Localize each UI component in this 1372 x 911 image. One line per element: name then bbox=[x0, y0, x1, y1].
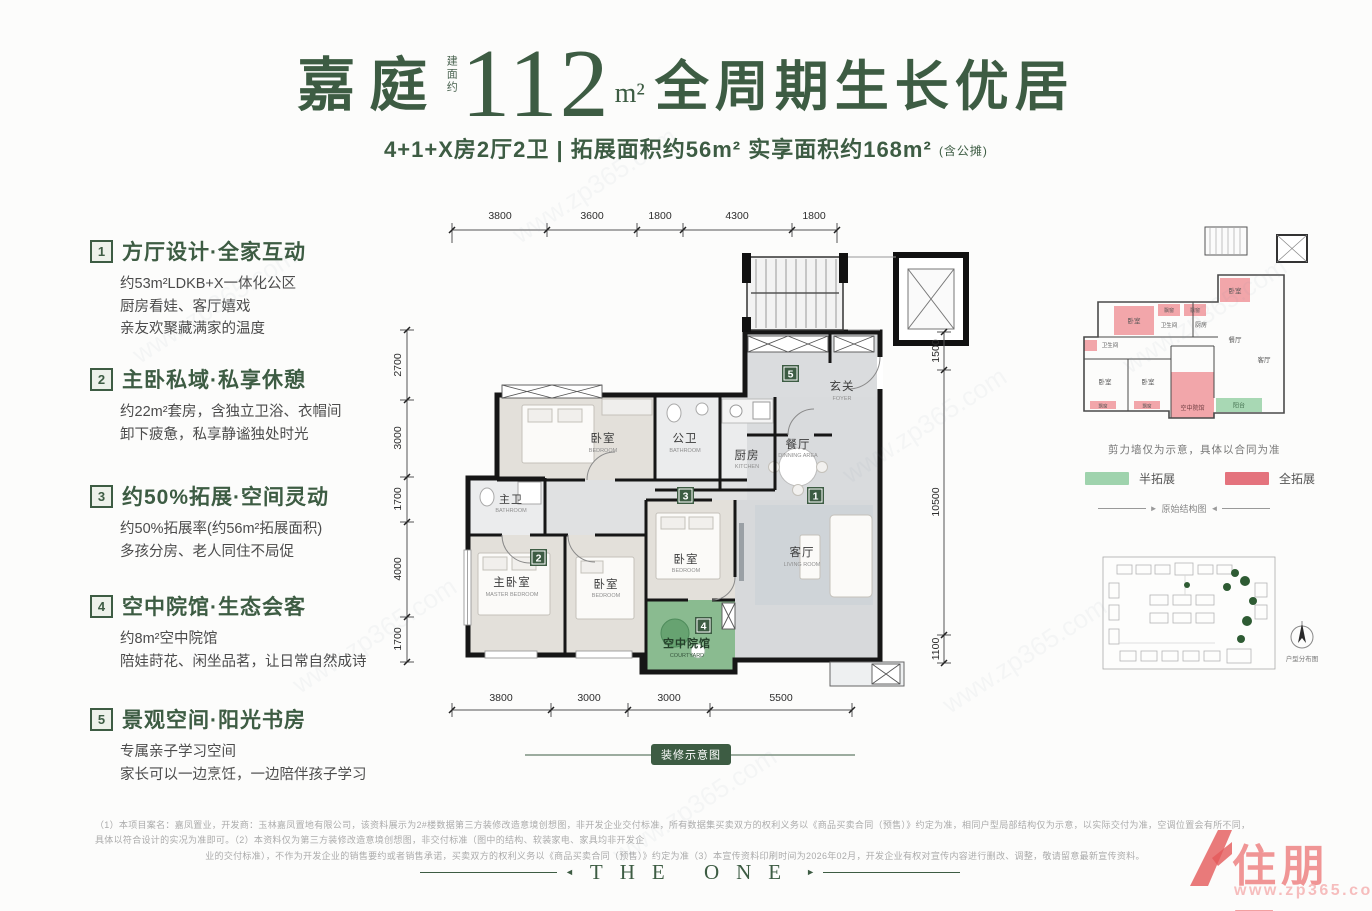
room-label-cn: 卧室 bbox=[594, 577, 619, 591]
legend-half-label: 半拓展 bbox=[1139, 470, 1175, 487]
feature-line: 亲友欢聚藏满家的温度 bbox=[120, 320, 405, 339]
watermark-site: www.zp365.com bbox=[1234, 882, 1372, 900]
feature-body: 约53m²LDKB+X一体化公区 厨房看娃、客厅嬉戏 亲友欢聚藏满家的温度 bbox=[120, 275, 405, 339]
svg-text:卫生间: 卫生间 bbox=[1161, 321, 1178, 329]
area-prefix: 建面约 bbox=[443, 55, 459, 94]
feature-block-2: 2 主卧私域·私享休憩 约22m²套房，含独立卫浴、衣帽间 卸下疲惫，私享静谧独… bbox=[90, 364, 405, 448]
structural-mini-plan: 卧室 卧室 飘窗 飘窗 卫生间 厨房 卫生间 卧室 卧室 飘窗 飘窗 餐厅 客厅… bbox=[1048, 222, 1348, 432]
title-row: 嘉庭 建面约 112 m² 全周期生长优居 bbox=[0, 38, 1372, 116]
mini-stairs bbox=[1205, 227, 1307, 262]
floorplan: 卧室 BEDROOM 公卫 BATHROOM 厨房 KITCHEN 餐厅 DIN… bbox=[390, 205, 990, 775]
svg-text:3800: 3800 bbox=[489, 692, 513, 704]
plan-badge-1: 1 bbox=[807, 487, 824, 504]
svg-text:1700: 1700 bbox=[392, 487, 404, 511]
balcony bbox=[830, 662, 904, 686]
feature-line: 约8m²空中院馆 bbox=[120, 630, 405, 649]
room-label-en: LIVING ROOM bbox=[784, 562, 821, 568]
svg-text:3000: 3000 bbox=[392, 426, 404, 450]
svg-text:1100: 1100 bbox=[930, 638, 942, 661]
feature-title: 约50%拓展·空间灵动 bbox=[122, 481, 329, 511]
svg-text:飘窗: 飘窗 bbox=[1099, 403, 1108, 410]
svg-text:客厅: 客厅 bbox=[1258, 355, 1272, 364]
svg-text:飘窗: 飘窗 bbox=[1190, 307, 1200, 314]
dims-left: 2700 3000 1700 4000 1700 bbox=[392, 327, 414, 665]
room-label-en: COURTYARD bbox=[670, 653, 704, 659]
svg-text:5500: 5500 bbox=[769, 692, 793, 704]
structural-note: 剪力墙仅为示意，具体以合同为准 bbox=[1108, 442, 1363, 457]
svg-text:卧室: 卧室 bbox=[1229, 286, 1243, 295]
room-label-en: BATHROOM bbox=[669, 448, 701, 454]
svg-text:餐厅: 餐厅 bbox=[1229, 335, 1243, 344]
svg-text:阳台: 阳台 bbox=[1233, 402, 1245, 410]
svg-text:1800: 1800 bbox=[802, 210, 826, 222]
compass-icon: 户型分布图 bbox=[1286, 621, 1319, 663]
plan-badge-5: 5 bbox=[782, 365, 799, 382]
room-label-cn: 厨房 bbox=[735, 449, 760, 462]
svg-text:卧室: 卧室 bbox=[1142, 377, 1156, 386]
logo-line bbox=[823, 872, 960, 873]
svg-text:3800: 3800 bbox=[488, 210, 512, 222]
svg-text:3000: 3000 bbox=[657, 692, 681, 704]
plan-badge-3: 3 bbox=[677, 487, 694, 504]
svg-text:卫生间: 卫生间 bbox=[1102, 341, 1119, 349]
structural-divider: ► 原始结构图 ◄ bbox=[1098, 502, 1270, 515]
room-label-en: FOYER bbox=[833, 396, 852, 402]
feature-line: 专属亲子学习空间 bbox=[120, 743, 405, 762]
room-label-en: BEDROOM bbox=[589, 448, 618, 454]
feature-line: 多孩分房、老人同住不局促 bbox=[120, 543, 405, 562]
feature-line: 家长可以一边烹饪，一边陪伴孩子学习 bbox=[120, 766, 405, 785]
svg-text:装修示意图: 装修示意图 bbox=[661, 748, 721, 762]
svg-text:飘窗: 飘窗 bbox=[1143, 403, 1152, 410]
room-label-en: KITCHEN bbox=[735, 464, 759, 470]
subtitle-note: (含公摊) bbox=[939, 144, 988, 158]
dims-bottom: 3800 3000 3000 5500 bbox=[449, 692, 855, 717]
room-label-cn: 卧室 bbox=[591, 431, 616, 445]
room-label-en: BEDROOM bbox=[592, 593, 621, 599]
feature-line: 约53m²LDKB+X一体化公区 bbox=[120, 275, 405, 294]
disclaimer-line1: （1）本项目案名：嘉凤置业，开发商：玉林嘉凤置地有限公司，该资料展示为2#楼数据… bbox=[95, 818, 1255, 849]
room-label-cn: 客厅 bbox=[790, 545, 815, 559]
svg-text:3600: 3600 bbox=[580, 210, 604, 222]
plan-badge-2: 2 bbox=[530, 549, 547, 566]
svg-text:3000: 3000 bbox=[577, 692, 601, 704]
plan-badge-4: 4 bbox=[695, 617, 712, 634]
feature-title: 景观空间·阳光书房 bbox=[122, 704, 306, 734]
room-label-cn: 主卫 bbox=[499, 493, 523, 506]
watermark-logo: 住朋网 www.zp365.com bbox=[1188, 824, 1372, 911]
room-label-cn: 空中院馆 bbox=[663, 636, 711, 650]
feature-line: 约50%拓展率(约56m²拓展面积) bbox=[120, 520, 405, 539]
subtitle-main: 4+1+X房2厅2卫 | 拓展面积约56m² 实享面积约168m² bbox=[384, 137, 932, 162]
svg-text:1500: 1500 bbox=[930, 339, 942, 363]
header: 嘉庭 建面约 112 m² 全周期生长优居 4+1+X房2厅2卫 | 拓展面积约… bbox=[0, 38, 1372, 164]
feature-block-3: 3 约50%拓展·空间灵动 约50%拓展率(约56m²拓展面积) 多孩分房、老人… bbox=[90, 481, 405, 565]
area-value: 112 bbox=[461, 44, 610, 124]
svg-text:1: 1 bbox=[813, 491, 819, 503]
feature-line: 陪娃莳花、闲坐品茗，让日常自然成诗 bbox=[120, 653, 405, 672]
feature-title: 方厅设计·全家互动 bbox=[122, 236, 306, 266]
feature-badge: 1 bbox=[90, 240, 113, 263]
svg-text:飘窗: 飘窗 bbox=[1164, 307, 1174, 314]
legend-half-swatch bbox=[1085, 472, 1129, 485]
svg-text:1800: 1800 bbox=[648, 210, 672, 222]
divider-line bbox=[1098, 508, 1146, 509]
legend: 半拓展 全拓展 bbox=[1085, 470, 1335, 487]
feature-title: 空中院馆·生态会客 bbox=[122, 591, 306, 621]
feature-badge: 5 bbox=[90, 708, 113, 731]
watermark-mark-icon bbox=[1188, 828, 1236, 890]
logo-arrow-left-icon: ◄ bbox=[565, 868, 574, 877]
room-label-en: BATHROOM bbox=[495, 508, 527, 514]
room-label-en: DINNING AREA bbox=[778, 453, 818, 459]
title-slogan: 全周期生长优居 bbox=[655, 42, 1075, 121]
divider-line bbox=[1222, 508, 1270, 509]
feature-block-5: 5 景观空间·阳光书房 专属亲子学习空间 家长可以一边烹饪，一边陪伴孩子学习 bbox=[90, 704, 405, 788]
divider-arrow-left-icon: ◄ bbox=[1211, 505, 1219, 513]
dims-right: 1500 10500 1100 bbox=[930, 329, 951, 666]
area-unit: m² bbox=[615, 78, 645, 110]
stairs bbox=[742, 253, 848, 332]
room-label-en: MASTER BEDROOM bbox=[486, 592, 539, 598]
svg-text:4300: 4300 bbox=[725, 210, 749, 222]
plan-caption: 装修示意图 bbox=[525, 744, 855, 765]
footer-logo: ◄ THE ONE ► bbox=[420, 860, 960, 885]
feature-head: 1 方厅设计·全家互动 bbox=[90, 236, 405, 266]
subtitle: 4+1+X房2厅2卫 | 拓展面积约56m² 实享面积约168m² (含公摊) bbox=[0, 132, 1372, 164]
room-label-cn: 玄关 bbox=[830, 379, 855, 393]
feature-badge: 2 bbox=[90, 368, 113, 391]
svg-text:10500: 10500 bbox=[930, 487, 942, 516]
poster: 嘉庭 建面约 112 m² 全周期生长优居 4+1+X房2厅2卫 | 拓展面积约… bbox=[0, 0, 1372, 911]
compass-label: 户型分布图 bbox=[1286, 654, 1319, 663]
svg-text:4000: 4000 bbox=[392, 557, 404, 581]
divider-arrow-right-icon: ► bbox=[1150, 505, 1158, 513]
site-plan: 户型分布图 bbox=[1095, 553, 1345, 690]
elevator bbox=[848, 255, 966, 343]
logo-text: THE ONE bbox=[590, 860, 798, 885]
structural-note-text: 剪力墙仅为示意，具体以合同为准 bbox=[1108, 444, 1281, 456]
svg-text:3: 3 bbox=[683, 491, 689, 503]
svg-text:4: 4 bbox=[701, 621, 707, 633]
room-label-cn: 卧室 bbox=[674, 552, 699, 566]
feature-line: 厨房看娃、客厅嬉戏 bbox=[120, 298, 405, 317]
logo-line bbox=[420, 872, 557, 873]
feature-block-1: 1 方厅设计·全家互动 约53m²LDKB+X一体化公区 厨房看娃、客厅嬉戏 亲… bbox=[90, 236, 405, 343]
legend-full-swatch bbox=[1225, 472, 1269, 485]
room-label-cn: 公卫 bbox=[673, 432, 698, 445]
svg-text:2: 2 bbox=[536, 553, 542, 565]
logo-arrow-right-icon: ► bbox=[806, 868, 815, 877]
feature-badge: 3 bbox=[90, 485, 113, 508]
svg-text:空中院馆: 空中院馆 bbox=[1180, 404, 1204, 412]
feature-line: 约22m²套房，含独立卫浴、衣帽间 bbox=[120, 403, 405, 422]
feature-badge: 4 bbox=[90, 595, 113, 618]
svg-text:卧室: 卧室 bbox=[1128, 316, 1142, 325]
room-label-cn: 餐厅 bbox=[786, 437, 811, 451]
disclaimer: （1）本项目案名：嘉凤置业，开发商：玉林嘉凤置地有限公司，该资料展示为2#楼数据… bbox=[95, 818, 1255, 864]
feature-line: 卸下疲惫，私享静谧独处时光 bbox=[120, 426, 405, 445]
divider-label: 原始结构图 bbox=[1162, 502, 1207, 515]
svg-text:2700: 2700 bbox=[392, 353, 404, 377]
dims-top: 3800 3600 1800 4300 1800 bbox=[449, 210, 840, 243]
project-name: 嘉庭 bbox=[297, 38, 441, 122]
feature-title: 主卧私域·私享休憩 bbox=[122, 364, 306, 394]
svg-text:1700: 1700 bbox=[392, 627, 404, 651]
svg-text:5: 5 bbox=[788, 369, 794, 381]
room-label-en: BEDROOM bbox=[672, 568, 701, 574]
svg-text:厨房: 厨房 bbox=[1195, 321, 1207, 329]
feature-block-4: 4 空中院馆·生态会客 约8m²空中院馆 陪娃莳花、闲坐品茗，让日常自然成诗 bbox=[90, 591, 405, 675]
room-label-cn: 主卧室 bbox=[493, 575, 531, 589]
legend-full-label: 全拓展 bbox=[1279, 470, 1315, 487]
svg-text:卧室: 卧室 bbox=[1099, 377, 1113, 386]
